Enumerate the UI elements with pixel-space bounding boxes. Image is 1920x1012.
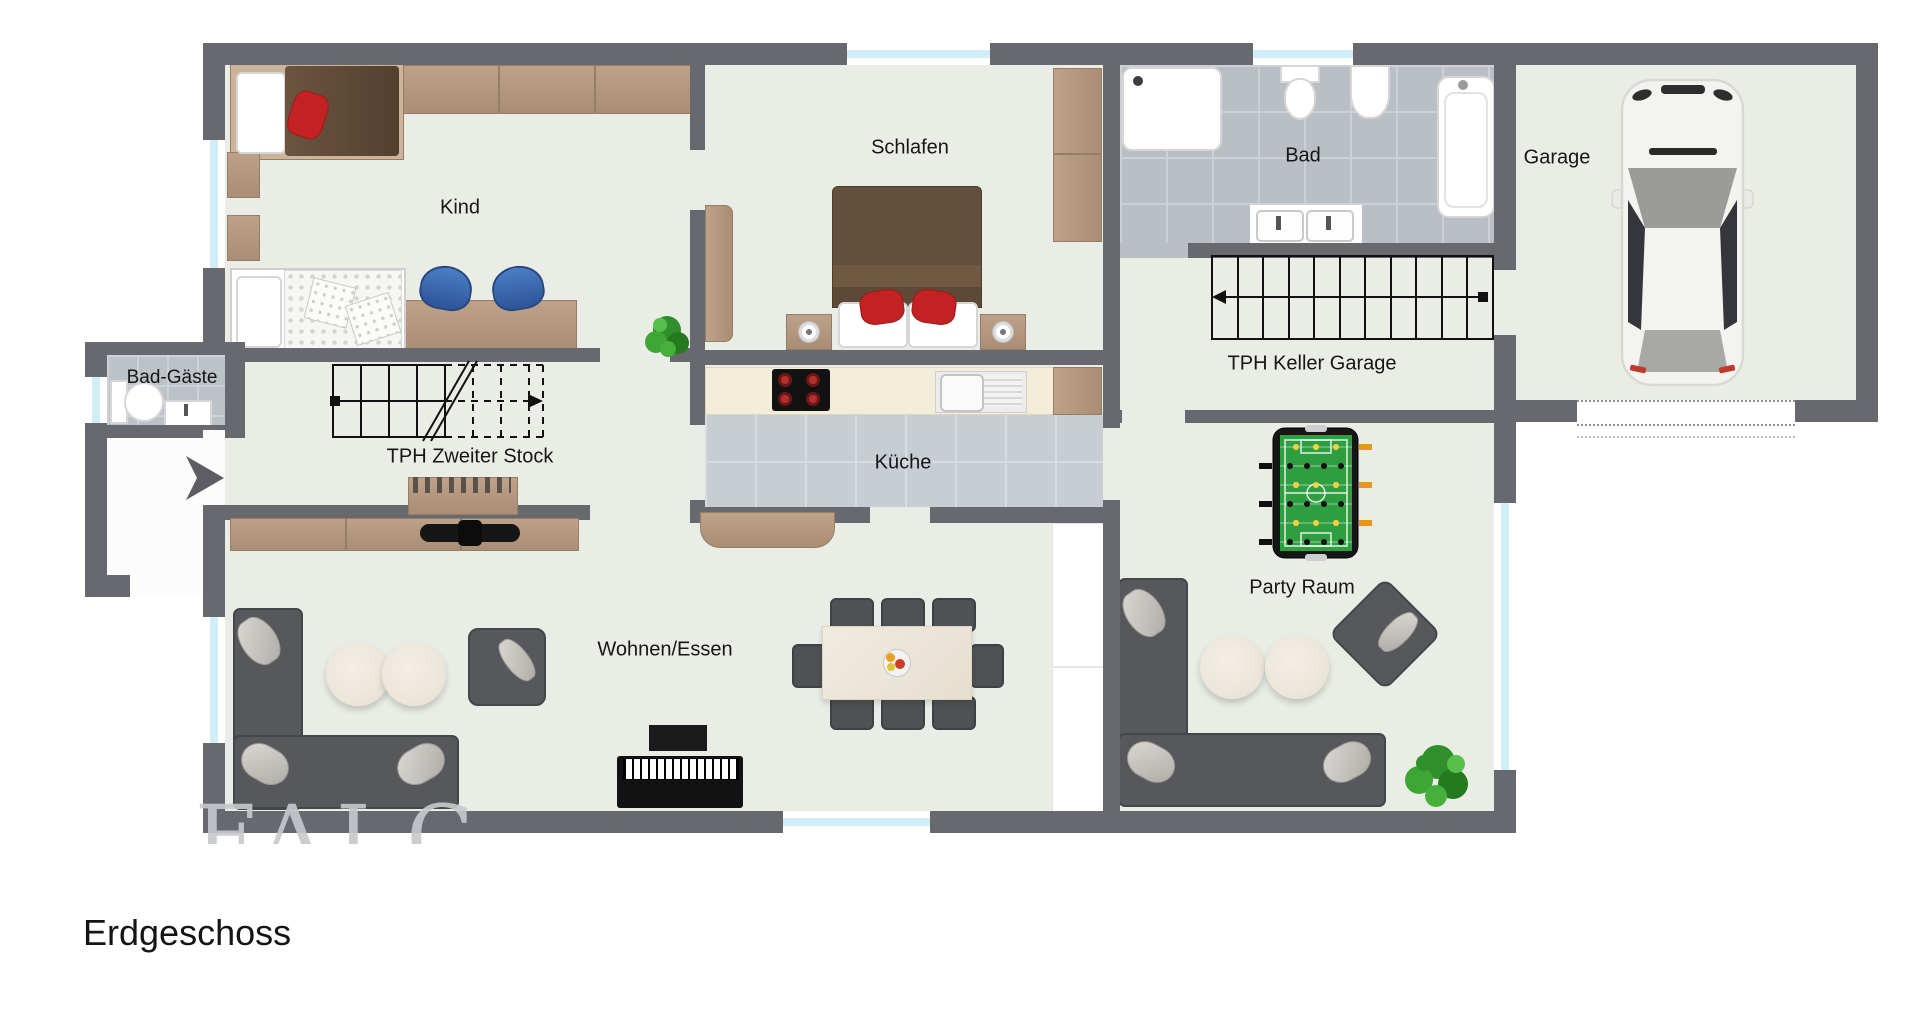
- kind-second-bed-pillow-icon: [236, 276, 282, 348]
- watermark-clip: FALC: [195, 798, 795, 844]
- wall: [1103, 43, 1120, 428]
- door-opening: [600, 348, 670, 362]
- room-label-schlafen: Schlafen: [871, 137, 949, 160]
- bidet-icon: [1350, 65, 1390, 119]
- wall: [705, 350, 1103, 365]
- guest-washbasin-faucet-icon: [184, 404, 188, 416]
- wall: [225, 342, 245, 438]
- door-opening: [870, 507, 930, 523]
- wall: [203, 43, 1878, 65]
- wall: [1185, 410, 1494, 423]
- fruit-icon: [895, 659, 905, 669]
- wall: [1103, 410, 1122, 423]
- page-title: Erdgeschoss: [83, 912, 291, 954]
- bathtub-inner-icon: [1444, 92, 1488, 208]
- kind-wardrobe-icon: [403, 65, 692, 114]
- kitchen-cabinet-end-icon: [1053, 367, 1102, 415]
- schlafen-dresser-icon: [705, 205, 733, 342]
- room-label-kind: Kind: [440, 197, 480, 220]
- window: [203, 617, 225, 743]
- floor-plan: Kind Schlafen Bad Garage Bad-Gäste TPH Z…: [0, 0, 1920, 1012]
- shower-head-icon: [1133, 76, 1143, 86]
- door-opening: [690, 150, 705, 210]
- room-label-kueche: Küche: [875, 452, 932, 475]
- kind-desk-icon: [403, 300, 577, 352]
- wall: [930, 507, 1103, 523]
- tv-soundbar-center-icon: [458, 520, 482, 546]
- wall: [1856, 43, 1878, 422]
- washbasin-faucet-icon: [1276, 216, 1281, 230]
- garage-door-sill: [1577, 428, 1795, 438]
- cooktop-burner-icon: [778, 392, 792, 406]
- wall: [690, 65, 705, 150]
- window: [1253, 43, 1353, 65]
- door-opening: [1120, 243, 1188, 258]
- wall: [1188, 243, 1494, 258]
- sideboard-icon: [230, 518, 579, 551]
- stair-hall-floor: [1120, 258, 1494, 410]
- cooktop-burner-icon: [778, 373, 792, 387]
- kitchen-counter-icon: [705, 367, 1102, 415]
- kind-bed-pillow-icon: [236, 72, 286, 154]
- stairs-upper-label: TPH Zweiter Stock: [387, 446, 554, 469]
- garage-door: [1577, 400, 1795, 426]
- coffee-table-icon: [326, 642, 390, 706]
- toilet-bowl-icon: [1284, 78, 1316, 120]
- room-label-garage: Garage: [1524, 147, 1591, 170]
- wall: [690, 210, 705, 348]
- door-opening: [1103, 428, 1120, 500]
- dining-chair-icon: [970, 644, 1004, 688]
- wall: [1494, 400, 1577, 422]
- double-bed-blanket-icon: [832, 186, 982, 308]
- kitchen-bench-icon: [700, 512, 835, 548]
- wall: [1103, 500, 1120, 833]
- window: [1494, 503, 1516, 770]
- wall: [85, 342, 225, 355]
- stairs-lower-label: TPH Keller Garage: [1228, 353, 1397, 376]
- window: [847, 43, 990, 65]
- dining-chair-icon: [881, 696, 925, 730]
- fruit-icon: [887, 663, 895, 671]
- piano-keys-icon: [623, 758, 739, 780]
- window: [783, 811, 930, 833]
- wall: [670, 348, 705, 362]
- washbasin-faucet-icon: [1326, 216, 1331, 230]
- wall: [225, 348, 600, 362]
- door-opening: [1122, 410, 1185, 423]
- door-opening: [203, 430, 225, 505]
- wall: [690, 362, 705, 425]
- window: [85, 377, 107, 423]
- piano-bench-icon: [649, 725, 707, 751]
- bathtub-faucet-icon: [1458, 80, 1468, 90]
- coffee-table-icon: [1265, 635, 1329, 699]
- room-label-wohnen-essen: Wohnen/Essen: [597, 639, 732, 662]
- wall: [1494, 43, 1516, 270]
- coffee-table-icon: [1200, 635, 1264, 699]
- dining-chair-icon: [932, 696, 976, 730]
- cooktop-burner-icon: [806, 373, 820, 387]
- window: [203, 140, 225, 268]
- fruit-icon: [886, 653, 895, 662]
- door-opening: [590, 505, 690, 520]
- watermark: FALC: [195, 798, 795, 844]
- cooktop-burner-icon: [806, 392, 820, 406]
- bedside-lamp-icon: [798, 321, 820, 343]
- dining-chair-icon: [830, 696, 874, 730]
- dining-chair-icon: [792, 644, 826, 688]
- kitchen-sink-basin-icon: [940, 374, 984, 412]
- tall-cabinet-divider: [1052, 666, 1103, 668]
- door-opening: [1494, 270, 1516, 335]
- garage-floor: [1516, 65, 1856, 400]
- bedside-lamp-icon: [992, 321, 1014, 343]
- door-opening: [690, 425, 705, 500]
- coat-rack-hooks-icon: [413, 477, 511, 493]
- schlafen-wardrobe-icon: [1053, 68, 1102, 242]
- room-label-bad: Bad: [1285, 145, 1321, 168]
- room-label-party-raum: Party Raum: [1249, 577, 1355, 600]
- wall: [85, 575, 130, 597]
- coffee-table-icon: [382, 642, 446, 706]
- kind-shelf-icon: [227, 152, 260, 198]
- room-label-bad-gaeste: Bad-Gäste: [127, 367, 218, 389]
- kitchen-sink-drainer-icon: [984, 375, 1022, 407]
- kind-shelf-icon: [227, 215, 260, 261]
